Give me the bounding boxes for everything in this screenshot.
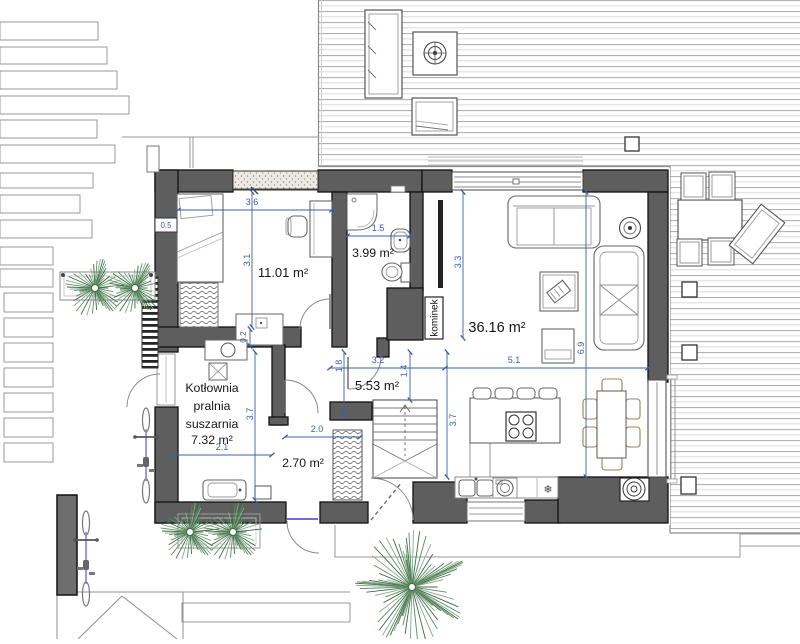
dim-vestibule-width: 2.0 <box>311 424 324 434</box>
cooktop-icon <box>506 412 536 441</box>
room-label-vestibule: 2.70 m² <box>282 456 324 470</box>
floor-plan-canvas: kominek <box>0 0 800 639</box>
utility-stand <box>209 363 227 380</box>
dim-wall-thickness: 0.2 <box>239 331 248 343</box>
roof-window-icon <box>412 98 457 135</box>
toilet <box>382 263 410 282</box>
bathroom-vent <box>391 186 405 192</box>
svg-text:pralnia: pralnia <box>194 399 231 413</box>
water-heater-icon <box>620 478 649 501</box>
garage-roof-outline <box>57 592 183 639</box>
planter-pot <box>620 218 641 239</box>
bed <box>177 194 223 282</box>
kitchen-counter: ❄ <box>455 477 558 498</box>
chaise-lounge <box>594 246 644 350</box>
dim-utility-depth: 3.7 <box>245 408 255 421</box>
tv-panel <box>438 200 443 288</box>
paver-path <box>0 22 129 462</box>
nw-chimney-stub <box>147 146 159 172</box>
dishwasher-icon <box>493 478 517 498</box>
svg-text:suszarnia: suszarnia <box>186 417 239 431</box>
room-label-hall: 5.53 m² <box>355 378 400 393</box>
svg-text:Kotłownia: Kotłownia <box>185 381 238 395</box>
privacy-screen <box>57 495 77 595</box>
dim-bedroom-depth: 3.1 <box>242 254 252 267</box>
chimney-icon <box>413 32 457 75</box>
room-label-bathroom: 3.99 m² <box>352 246 394 260</box>
dim-hall-seg-b: 1.4 <box>399 365 409 378</box>
dim-living-left-depth: 3.3 <box>453 256 463 269</box>
dim-living-depth: 6.9 <box>576 342 586 355</box>
roof-window-icon <box>365 10 402 98</box>
dim-bedroom-offset: 0.5 <box>160 221 172 230</box>
svg-text:7.32 m²: 7.32 m² <box>191 433 233 447</box>
bedroom-wardrobe <box>180 283 218 327</box>
dim-hall-seg-a: 1.8 <box>334 360 344 373</box>
dim-bathroom-width: 1.5 <box>372 223 385 233</box>
hall-wardrobe <box>333 430 362 500</box>
room-label-bedroom: 11.01 m² <box>258 265 309 280</box>
kitchen-window <box>467 502 525 521</box>
fireplace-label-box: kominek <box>425 297 443 339</box>
room-label-living: 36.16 m² <box>468 320 525 336</box>
dim-living-width: 5.1 <box>508 355 521 365</box>
living-north-glazing <box>452 172 583 190</box>
side-stool <box>542 329 574 363</box>
coffee-table <box>540 272 578 311</box>
dim-hall-width: 3.2 <box>372 355 385 365</box>
dim-bedroom-width: 3.6 <box>246 197 259 207</box>
fireplace-label: kominek <box>430 298 441 336</box>
south-walkway <box>105 522 800 622</box>
dim-hall-depth: 3.7 <box>448 414 458 427</box>
fridge-icon: ❄ <box>543 484 552 496</box>
fireplace-mass <box>387 288 423 340</box>
